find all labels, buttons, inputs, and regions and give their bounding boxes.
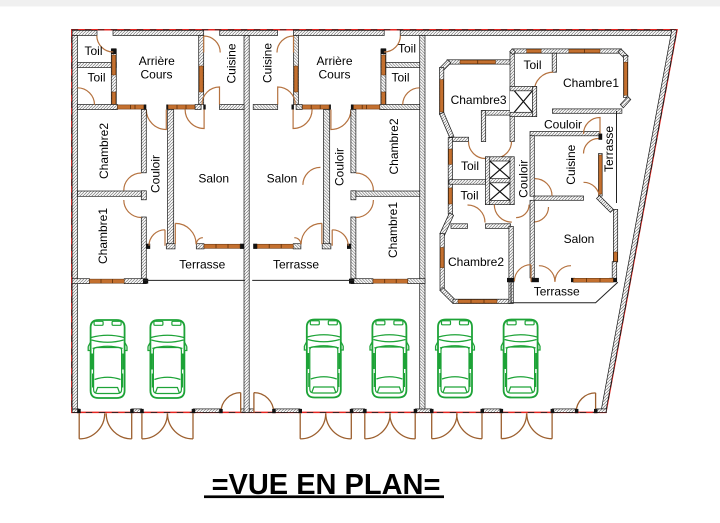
svg-text:Terrasse: Terrasse bbox=[179, 258, 225, 272]
svg-text:Arrière: Arrière bbox=[316, 54, 352, 68]
svg-text:Chambre2: Chambre2 bbox=[97, 123, 111, 179]
svg-text:Cours: Cours bbox=[318, 68, 350, 82]
svg-text:Chambre2: Chambre2 bbox=[387, 118, 401, 174]
svg-text:Chambre1: Chambre1 bbox=[96, 208, 110, 264]
svg-text:Cuisine: Cuisine bbox=[564, 144, 578, 184]
svg-text:Toil: Toil bbox=[87, 71, 105, 85]
svg-text:Arrière: Arrière bbox=[139, 54, 175, 68]
svg-text:Salon: Salon bbox=[198, 172, 229, 186]
svg-text:Couloir: Couloir bbox=[517, 160, 531, 198]
svg-text:Couloir: Couloir bbox=[544, 118, 582, 132]
svg-text:Cours: Cours bbox=[140, 68, 172, 82]
svg-text:Cuisine: Cuisine bbox=[225, 43, 239, 83]
svg-text:Salon: Salon bbox=[564, 232, 595, 246]
svg-text:Chambre1: Chambre1 bbox=[386, 202, 400, 258]
svg-text:Toil: Toil bbox=[391, 71, 409, 85]
svg-text:Toil: Toil bbox=[398, 42, 416, 56]
svg-text:Salon: Salon bbox=[267, 172, 298, 186]
svg-text:Couloir: Couloir bbox=[333, 148, 347, 186]
svg-text:Toil: Toil bbox=[84, 44, 102, 58]
svg-text:Couloir: Couloir bbox=[149, 155, 163, 193]
svg-text:Chambre1: Chambre1 bbox=[563, 76, 619, 90]
svg-text:Chambre3: Chambre3 bbox=[451, 93, 507, 107]
svg-text:Toil: Toil bbox=[523, 58, 541, 72]
svg-text:Chambre2: Chambre2 bbox=[448, 255, 504, 269]
svg-text:Toil: Toil bbox=[461, 159, 479, 173]
svg-text:Terrasse: Terrasse bbox=[273, 258, 319, 272]
svg-text:Terrasse: Terrasse bbox=[602, 126, 616, 172]
svg-text:Terrasse: Terrasse bbox=[534, 285, 580, 299]
svg-text:Toil: Toil bbox=[460, 189, 478, 203]
svg-text:Cuisine: Cuisine bbox=[261, 43, 275, 83]
